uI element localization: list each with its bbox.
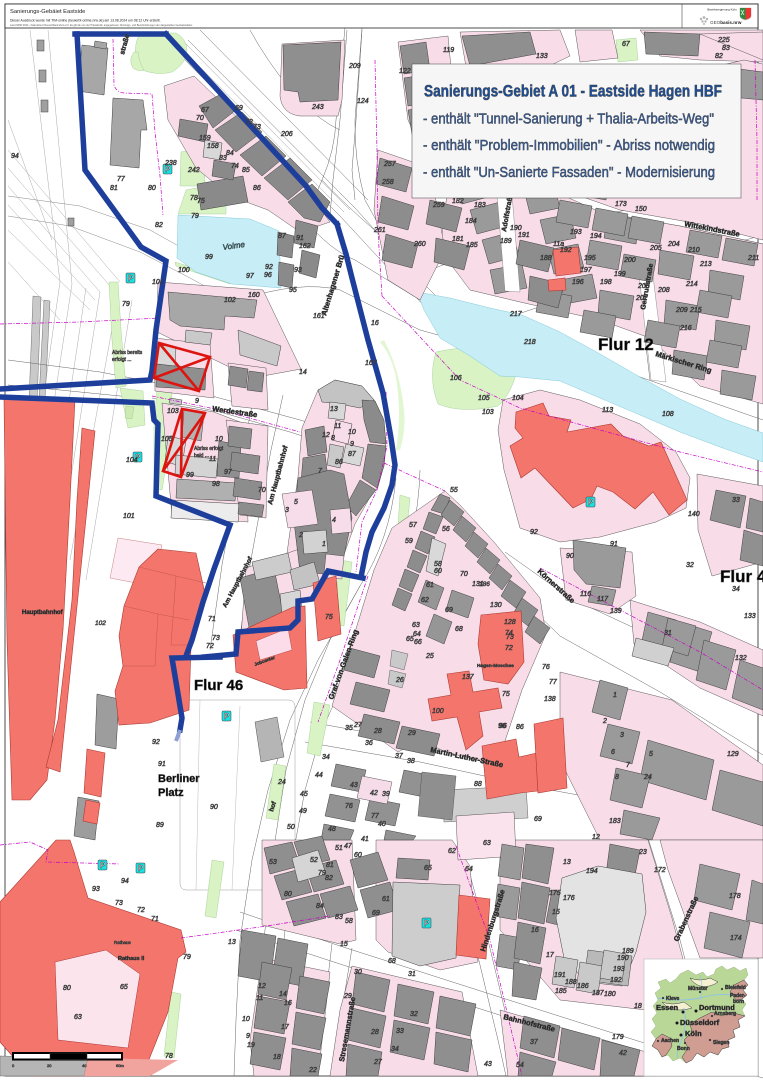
svg-text:182: 182 [452,198,464,205]
svg-text:94: 94 [11,153,19,160]
svg-text:37: 37 [395,753,404,760]
svg-text:211: 211 [747,255,759,262]
svg-text:75: 75 [197,198,205,205]
svg-text:67: 67 [622,41,631,48]
svg-text:9: 9 [350,441,354,448]
svg-text:198: 198 [600,279,612,286]
svg-text:10: 10 [242,1016,250,1023]
svg-text:42: 42 [619,1050,627,1057]
svg-text:259: 259 [432,202,445,209]
svg-text:209: 209 [348,63,361,70]
svg-text:71: 71 [151,916,159,923]
svg-text:77: 77 [371,813,380,820]
svg-text:181: 181 [452,236,464,243]
svg-text:216: 216 [679,325,692,332]
svg-text:101: 101 [152,279,164,286]
svg-text:Berliner: Berliner [158,773,200,785]
svg-text:Flur 46: Flur 46 [194,677,243,694]
svg-text:104: 104 [512,395,524,402]
svg-text:P: P [588,498,594,507]
svg-text:258: 258 [381,179,394,186]
svg-text:205: 205 [649,245,662,252]
svg-text:80: 80 [148,185,156,192]
svg-text:78: 78 [165,1053,173,1060]
svg-text:160: 160 [248,292,260,299]
svg-text:159: 159 [199,135,211,142]
svg-text:81: 81 [326,862,334,869]
svg-text:91: 91 [610,541,618,548]
svg-text:73: 73 [212,635,220,642]
svg-text:P: P [128,274,134,283]
svg-text:37: 37 [530,1039,539,1046]
svg-text:210: 210 [687,247,700,254]
svg-text:190: 190 [510,225,522,232]
svg-text:Flur 4: Flur 4 [720,567,763,586]
svg-text:77: 77 [117,176,126,183]
svg-text:72: 72 [245,119,253,126]
svg-text:225: 225 [717,37,730,44]
svg-text:26: 26 [395,677,404,684]
svg-text:43: 43 [350,782,358,789]
svg-text:2: 2 [298,532,303,539]
svg-text:207: 207 [635,295,649,302]
svg-text:55: 55 [450,487,458,494]
svg-text:Rathaus II: Rathaus II [118,956,145,962]
svg-text:113: 113 [602,407,613,414]
svg-text:4: 4 [332,517,336,524]
svg-text:86: 86 [516,724,524,731]
svg-text:66: 66 [414,639,422,646]
svg-text:- enthält "Problem-Immobilien": - enthält "Problem-Immobilien" - Abriss … [423,137,715,154]
svg-text:1: 1 [613,692,617,699]
svg-text:75: 75 [325,614,333,621]
svg-text:96: 96 [264,272,272,279]
svg-text:28: 28 [370,1029,379,1036]
svg-text:86: 86 [335,459,343,466]
svg-text:84: 84 [316,903,324,910]
svg-text:133: 133 [536,53,548,60]
svg-text:119: 119 [443,47,454,54]
svg-text:38: 38 [407,758,415,765]
svg-text:105: 105 [478,395,490,402]
svg-text:81: 81 [110,185,118,192]
svg-text:20: 20 [47,1063,52,1068]
svg-text:79: 79 [183,954,191,961]
svg-text:10: 10 [215,436,223,443]
svg-text:191: 191 [518,232,530,239]
svg-text:34: 34 [322,754,330,761]
svg-text:122: 122 [399,68,411,75]
svg-text:16: 16 [531,927,539,934]
svg-text:91: 91 [296,235,304,242]
svg-text:6: 6 [611,749,615,756]
svg-text:206: 206 [637,283,650,290]
svg-text:31: 31 [664,630,672,637]
svg-text:104: 104 [126,457,138,464]
svg-text:116: 116 [580,591,591,598]
svg-text:Münster: Münster [688,986,708,992]
svg-text:260: 260 [413,241,426,248]
svg-text:98: 98 [212,481,220,488]
svg-text:128: 128 [504,619,516,626]
svg-text:194: 194 [590,233,602,240]
svg-text:95: 95 [289,287,297,294]
svg-text:50: 50 [287,824,295,831]
svg-text:Bonn: Bonn [677,1046,690,1052]
svg-text:64: 64 [413,631,421,638]
svg-text:18: 18 [634,1003,642,1010]
svg-text:18: 18 [273,1054,281,1061]
svg-text:87: 87 [348,451,357,458]
svg-text:10: 10 [348,429,356,436]
svg-text:99: 99 [205,254,213,261]
svg-text:185: 185 [466,242,478,249]
svg-text:132: 132 [735,655,747,662]
svg-text:60: 60 [434,568,442,575]
svg-text:13: 13 [228,939,236,946]
svg-text:30: 30 [354,969,362,976]
svg-text:90: 90 [566,553,574,560]
svg-text:11: 11 [209,456,216,463]
svg-text:193: 193 [570,229,582,236]
svg-text:200: 200 [623,257,636,264]
svg-text:192: 192 [560,247,572,254]
svg-text:74: 74 [505,630,513,637]
svg-text:179: 179 [612,1034,624,1041]
svg-text:175: 175 [549,890,561,897]
svg-text:43: 43 [484,1061,492,1068]
svg-text:105: 105 [161,436,173,443]
svg-text:92: 92 [152,739,160,746]
svg-text:Hagen-Moschee: Hagen-Moschee [477,663,514,669]
svg-text:8: 8 [331,435,335,442]
svg-text:84: 84 [226,150,234,157]
svg-text:213: 213 [699,261,712,268]
svg-text:108: 108 [662,411,674,418]
svg-text:33: 33 [732,497,740,504]
svg-text:33: 33 [396,1028,404,1035]
svg-text:194: 194 [586,868,598,875]
svg-text:195: 195 [584,255,596,262]
svg-text:69: 69 [235,105,243,112]
svg-text:92: 92 [530,529,538,536]
svg-text:190: 190 [617,955,629,962]
svg-text:75: 75 [502,691,510,698]
svg-text:23: 23 [638,849,647,856]
svg-text:73: 73 [115,900,123,907]
svg-text:83: 83 [219,155,227,162]
svg-text:82: 82 [155,222,163,229]
svg-text:257: 257 [383,161,397,168]
svg-text:17: 17 [546,952,555,959]
svg-text:GEObasis.nrw: GEObasis.nrw [710,20,742,25]
svg-text:14: 14 [279,991,287,998]
svg-text:88: 88 [474,781,482,788]
svg-text:65: 65 [120,984,128,991]
svg-text:52: 52 [310,857,318,864]
svg-text:25: 25 [425,653,434,660]
svg-text:238: 238 [164,160,177,167]
svg-text:218: 218 [523,339,536,346]
svg-text:65: 65 [424,865,432,872]
svg-text:Köln: Köln [685,1029,702,1038]
svg-text:47: 47 [344,843,353,850]
svg-text:80: 80 [63,985,71,992]
svg-text:39: 39 [382,791,390,798]
svg-text:196: 196 [572,279,584,286]
svg-text:139: 139 [610,608,622,615]
svg-text:133: 133 [744,613,756,620]
svg-text:63: 63 [74,1014,82,1021]
svg-text:183: 183 [474,202,486,209]
svg-text:189: 189 [622,948,634,955]
svg-text:188: 188 [565,979,577,986]
svg-text:72: 72 [505,645,513,652]
svg-text:137: 137 [462,674,475,681]
svg-text:215: 215 [689,307,702,314]
svg-text:P: P [138,864,144,873]
svg-text:186: 186 [577,983,589,990]
svg-text:60m: 60m [116,1063,124,1068]
svg-text:12: 12 [258,983,266,990]
svg-text:9: 9 [195,398,199,405]
svg-text:82: 82 [715,53,723,60]
svg-text:67: 67 [201,107,210,114]
svg-text:40: 40 [82,1063,87,1068]
svg-text:13: 13 [330,406,338,413]
svg-text:Abriss bereits: Abriss bereits [112,350,143,356]
svg-text:193: 193 [613,966,625,973]
svg-text:69: 69 [445,607,453,614]
svg-text:40: 40 [378,821,386,828]
svg-text:86: 86 [253,185,261,192]
svg-text:102: 102 [224,297,236,304]
svg-text:17: 17 [281,1024,290,1031]
svg-text:178: 178 [729,893,741,900]
svg-text:103: 103 [482,409,494,416]
svg-text:Platz: Platz [158,787,184,799]
svg-text:63: 63 [483,840,491,847]
svg-text:87: 87 [278,233,287,240]
svg-text:69: 69 [534,816,542,823]
svg-text:83: 83 [722,45,730,52]
svg-text:12: 12 [592,834,600,841]
svg-text:140: 140 [688,511,700,518]
svg-text:62: 62 [448,848,456,855]
svg-text:Bielefeld: Bielefeld [725,985,746,991]
svg-text:124: 124 [357,98,369,105]
svg-text:183: 183 [609,818,621,825]
svg-text:Dieser Ausdruck wurde mit TIM-: Dieser Ausdruck wurde mit TIM-online (be… [10,19,161,23]
svg-text:59: 59 [405,538,413,545]
svg-text:34: 34 [391,1046,399,1053]
svg-text:19: 19 [247,1042,255,1049]
svg-text:93: 93 [294,267,302,274]
svg-text:242: 242 [187,167,200,174]
svg-text:72: 72 [206,643,214,650]
svg-text:58: 58 [434,561,442,568]
svg-text:161: 161 [313,313,325,320]
svg-text:58: 58 [345,918,353,925]
svg-text:69: 69 [372,910,380,917]
svg-text:106: 106 [450,375,462,382]
svg-text:Hauptbahnhof: Hauptbahnhof [22,610,64,616]
svg-text:243: 243 [311,104,324,111]
svg-text:P: P [224,712,230,721]
svg-text:erfolgt ...: erfolgt ... [112,357,131,363]
svg-text:P: P [100,861,106,870]
svg-text:162: 162 [299,243,311,250]
svg-text:68: 68 [455,626,463,633]
svg-text:Flur 12: Flur 12 [598,335,654,354]
svg-text:8: 8 [615,774,619,781]
svg-text:12: 12 [322,432,330,439]
svg-text:16: 16 [371,320,379,327]
svg-text:189: 189 [500,238,512,245]
svg-text:24: 24 [277,779,286,786]
svg-text:5: 5 [294,499,298,506]
svg-text:27: 27 [373,1059,383,1066]
svg-text:Kleve: Kleve [666,996,680,1002]
svg-text:130: 130 [490,602,502,609]
svg-text:3: 3 [620,732,624,739]
svg-text:53: 53 [269,859,277,866]
svg-text:36: 36 [365,740,373,747]
svg-text:82: 82 [325,875,333,882]
svg-text:2: 2 [602,718,607,725]
svg-text:41: 41 [361,836,369,843]
svg-text:Abriss erfolgt: Abriss erfolgt [194,446,224,452]
svg-text:138: 138 [544,696,556,703]
svg-text:85: 85 [242,167,250,174]
svg-text:11: 11 [334,423,341,430]
svg-text:79: 79 [122,301,130,308]
svg-text:68: 68 [388,958,396,965]
svg-text:89: 89 [156,822,164,829]
svg-text:9: 9 [246,1033,250,1040]
svg-text:29: 29 [407,730,416,737]
svg-text:31: 31 [408,971,416,978]
svg-text:70: 70 [258,487,266,494]
svg-text:Düsseldorf: Düsseldorf [680,1018,720,1027]
svg-text:1: 1 [322,541,326,548]
svg-text:56: 56 [442,526,450,533]
svg-text:28: 28 [373,728,382,735]
svg-text:180: 180 [604,991,616,998]
svg-text:206: 206 [280,131,293,138]
svg-text:176: 176 [563,895,575,902]
svg-text:62: 62 [421,597,429,604]
svg-text:72: 72 [137,907,145,914]
svg-text:96: 96 [499,723,507,730]
svg-text:Rathaus: Rathaus [114,940,132,945]
svg-text:48: 48 [328,826,336,833]
svg-text:64: 64 [465,866,473,873]
svg-text:70: 70 [196,115,204,122]
svg-text:209: 209 [675,307,688,314]
svg-text:129: 129 [727,751,739,758]
svg-text:172: 172 [654,867,666,874]
svg-text:65: 65 [406,636,414,643]
svg-text:204: 204 [667,241,680,248]
svg-text:91: 91 [158,761,166,768]
svg-text:P: P [424,919,430,928]
svg-text:32: 32 [686,562,694,569]
svg-text:14: 14 [299,369,307,376]
svg-text:Dortmund: Dortmund [699,1003,735,1012]
svg-text:174: 174 [730,935,742,942]
svg-text:Aachen: Aachen [661,1038,679,1044]
svg-text:45: 45 [300,791,308,798]
svg-text:74: 74 [231,163,239,170]
svg-text:73: 73 [253,124,261,131]
svg-text:93: 93 [92,886,100,893]
svg-text:90: 90 [210,804,218,811]
svg-text:22: 22 [308,1067,317,1074]
svg-text:35: 35 [345,725,353,732]
svg-text:15: 15 [340,941,348,948]
svg-text:191: 191 [554,972,566,979]
svg-text:101: 101 [123,513,135,520]
svg-text:42: 42 [370,790,378,797]
svg-text:185: 185 [555,988,567,995]
svg-text:Bezirksregierung Köln: Bezirksregierung Köln [707,8,737,12]
svg-text:103: 103 [167,408,179,415]
svg-text:261: 261 [373,227,386,234]
svg-text:100: 100 [432,708,444,715]
svg-text:76: 76 [345,803,353,810]
svg-text:102: 102 [95,620,106,627]
svg-text:Essen: Essen [656,1003,679,1012]
svg-text:Land NRW 2024 - Datenlizenz De: Land NRW 2024 - Datenlizenz Deutschland-… [10,24,193,27]
svg-text:100: 100 [178,267,190,274]
svg-text:- enthält "Tunnel-Sanierung +: - enthält "Tunnel-Sanierung + Thalia-Arb… [423,111,714,128]
svg-text:76: 76 [542,664,550,671]
svg-text:63: 63 [412,622,420,629]
svg-text:208: 208 [657,287,670,294]
svg-text:71: 71 [208,616,216,623]
svg-text:Sanierungs-Gebäiet Eastside: Sanierungs-Gebäiet Eastside [10,9,85,15]
svg-text:214: 214 [685,281,698,288]
svg-text:Sanierungs-Gebiet A 01 - Easts: Sanierungs-Gebiet A 01 - Eastside Hagen … [424,83,722,101]
svg-text:187: 187 [592,990,605,997]
svg-text:83: 83 [335,914,343,921]
svg-text:49: 49 [299,808,307,815]
svg-text:79: 79 [191,213,199,220]
svg-text:3: 3 [285,507,289,514]
svg-text:184: 184 [465,218,477,225]
svg-text:77: 77 [549,679,558,686]
svg-text:61: 61 [426,582,434,589]
svg-text:44: 44 [315,772,323,779]
svg-text:32: 32 [410,1011,418,1018]
svg-text:188: 188 [540,255,552,262]
svg-text:Siegen: Siegen [713,1040,729,1046]
svg-text:27: 27 [353,722,363,729]
svg-text:217: 217 [509,311,523,318]
svg-text:29: 29 [343,993,352,1000]
svg-text:150: 150 [635,206,647,213]
svg-text:16: 16 [284,1000,292,1007]
svg-text:97: 97 [224,469,233,476]
svg-text:5: 5 [649,751,653,758]
svg-text:11: 11 [256,995,263,1002]
svg-text:197: 197 [580,267,593,274]
svg-text:117: 117 [597,596,609,603]
svg-text:54: 54 [516,1062,524,1069]
svg-text:34: 34 [732,586,740,593]
svg-text:bald ...: bald ... [194,453,209,459]
